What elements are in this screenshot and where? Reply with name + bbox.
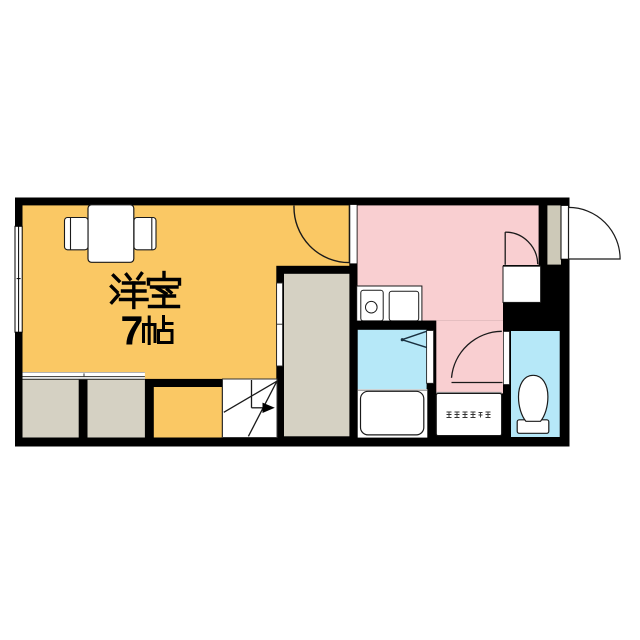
svg-text:7: 7 — [121, 308, 144, 354]
